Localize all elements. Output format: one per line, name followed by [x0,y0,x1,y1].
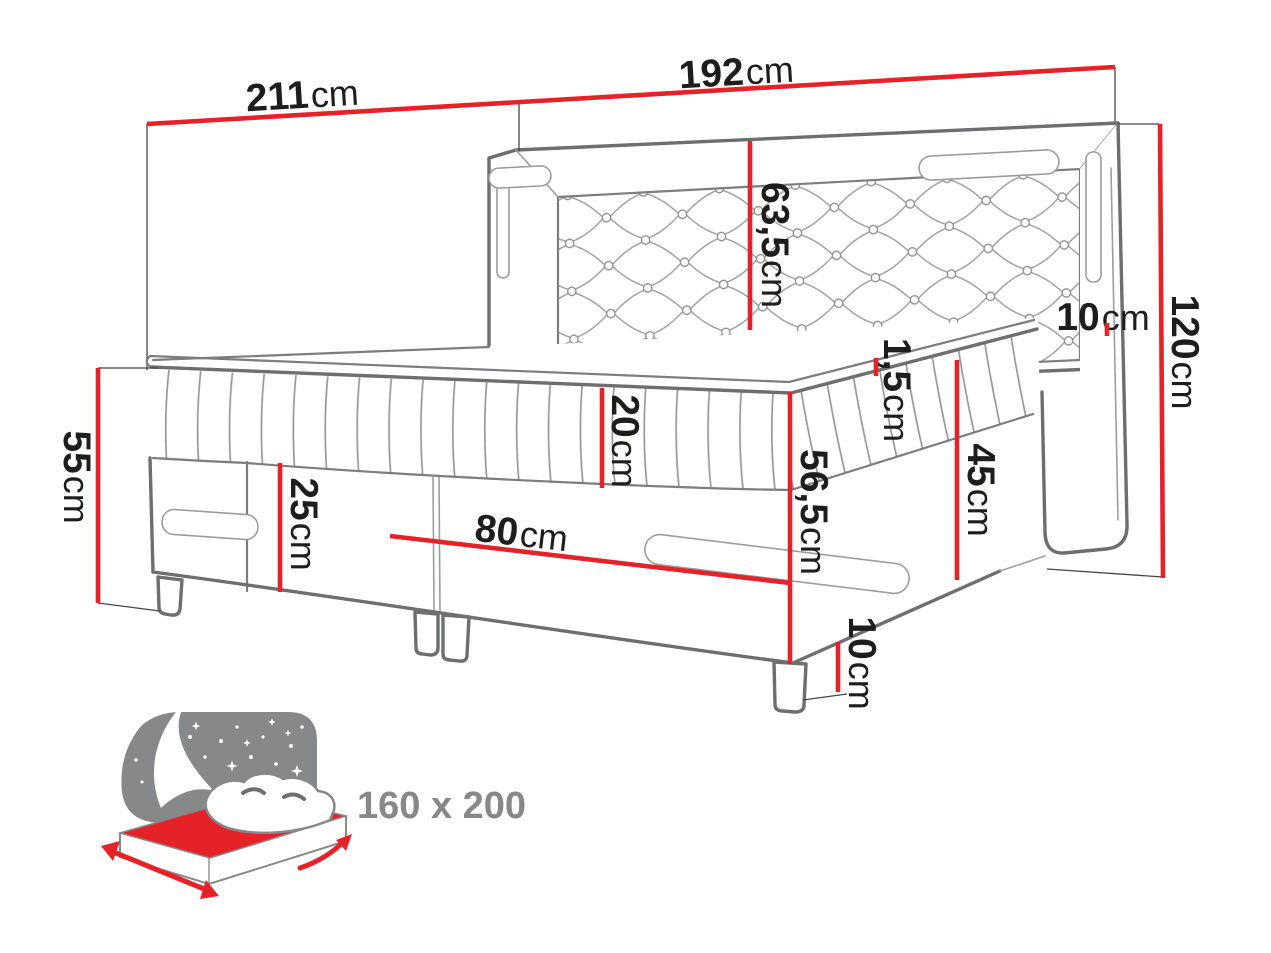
label-headboard-total-height: 120cm [1163,294,1206,409]
ext-leg-height-bottom [803,694,847,700]
led-slot-left-vertical [497,176,509,278]
leg-middle-right [443,615,469,661]
size-badge-label: 160 x 200 [357,785,526,827]
leg-front-left [158,577,182,615]
ext-foot-height-bottom [98,603,160,611]
label-drawer-front-height: 25cm [282,477,325,570]
led-slot-right-vertical [1086,152,1101,282]
label-overall-width: 211cm [245,71,360,121]
label-leg-height: 10cm [840,616,883,709]
label-topper-thickness: 1,5cm [875,338,918,442]
label-side-frame-width: 10cm [1056,296,1149,339]
dim-topper-thickness: 1,5cm [875,338,918,442]
dim-leg-height: 10cm [838,616,883,709]
bed-size-icon [101,712,352,899]
dimension-line [1160,124,1163,578]
wall-bottom-edge [1047,569,1163,577]
dim-foot-end-height: 55cm [55,368,98,603]
label-mattress-thickness: 20cm [603,394,646,487]
dim-headboard-total-height: 120cm [1160,124,1206,578]
leg-front-right [774,662,806,712]
label-corner-height: 56,5cm [792,449,835,575]
label-headboard-panel-height: 63,5cm [753,182,796,308]
size-badge: 160 x 200 [101,712,526,899]
dim-side-frame-width: 10cm [1056,296,1149,339]
leg-middle-left [415,612,438,655]
led-slot-left-horizontal [489,165,552,188]
diagram-svg: 211cm 192cm 63,5cm 10cm 120cm 1,5cm 20cm… [0,0,1271,953]
label-bed-width: 192cm [678,48,795,98]
dim-overall-and-bed-width: 211cm 192cm [147,48,1115,124]
label-base-side-height: 45cm [959,443,1002,536]
label-foot-end-height: 55cm [55,430,98,523]
bed-dimension-diagram: 211cm 192cm 63,5cm 10cm 120cm 1,5cm 20cm… [0,0,1271,953]
